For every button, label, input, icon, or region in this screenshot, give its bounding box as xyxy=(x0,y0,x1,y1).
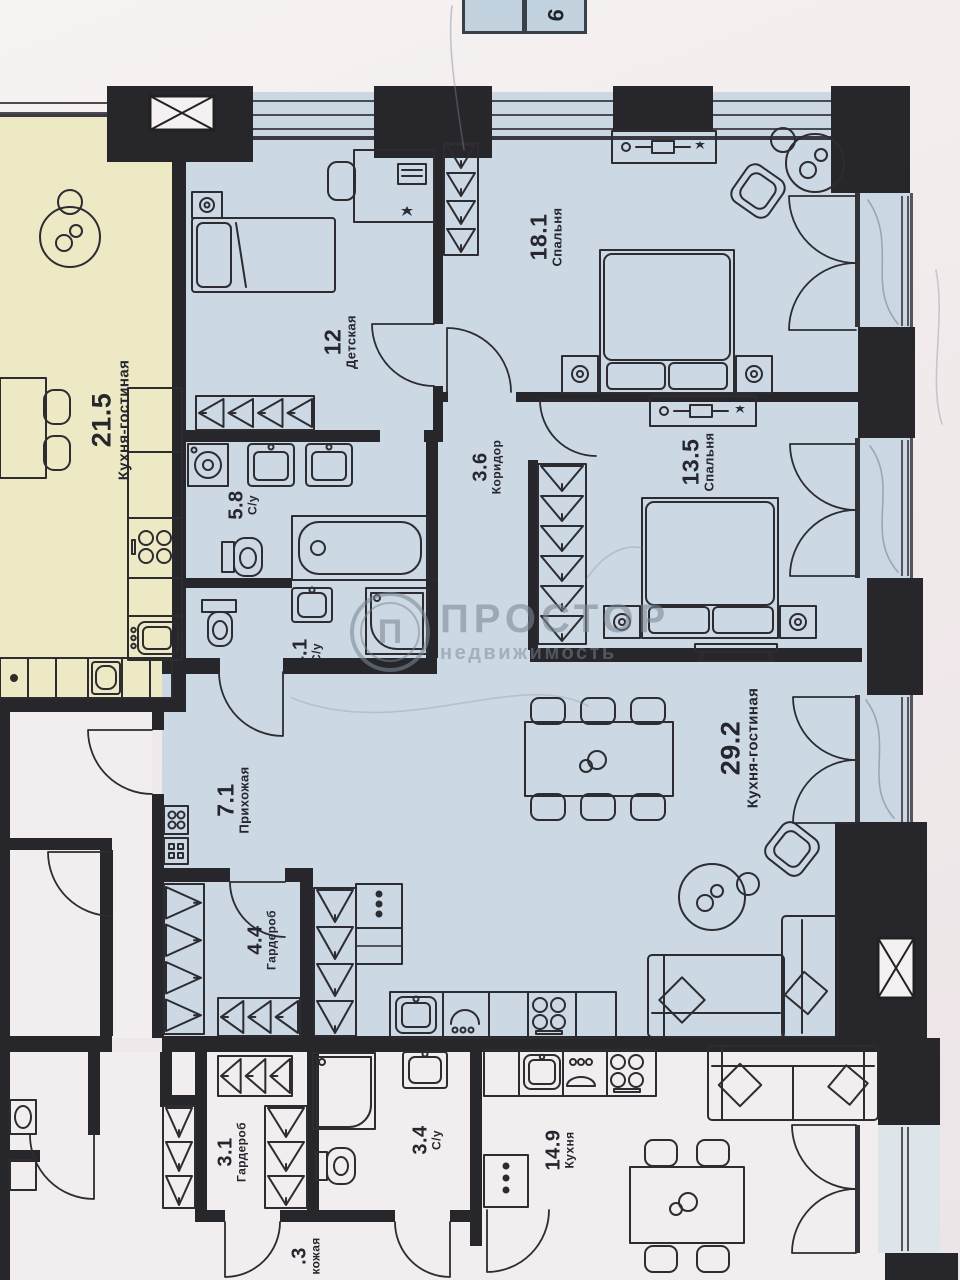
floor-number-cell-left xyxy=(462,0,525,34)
floorplan-drawing xyxy=(0,0,960,1280)
floor-number-cell-right: 9 xyxy=(525,0,587,34)
floor-number-table: 9 xyxy=(462,0,587,34)
floor-plan-photo: { "floor_badge": {"cells": ["", "9"]}, "… xyxy=(0,0,960,1280)
